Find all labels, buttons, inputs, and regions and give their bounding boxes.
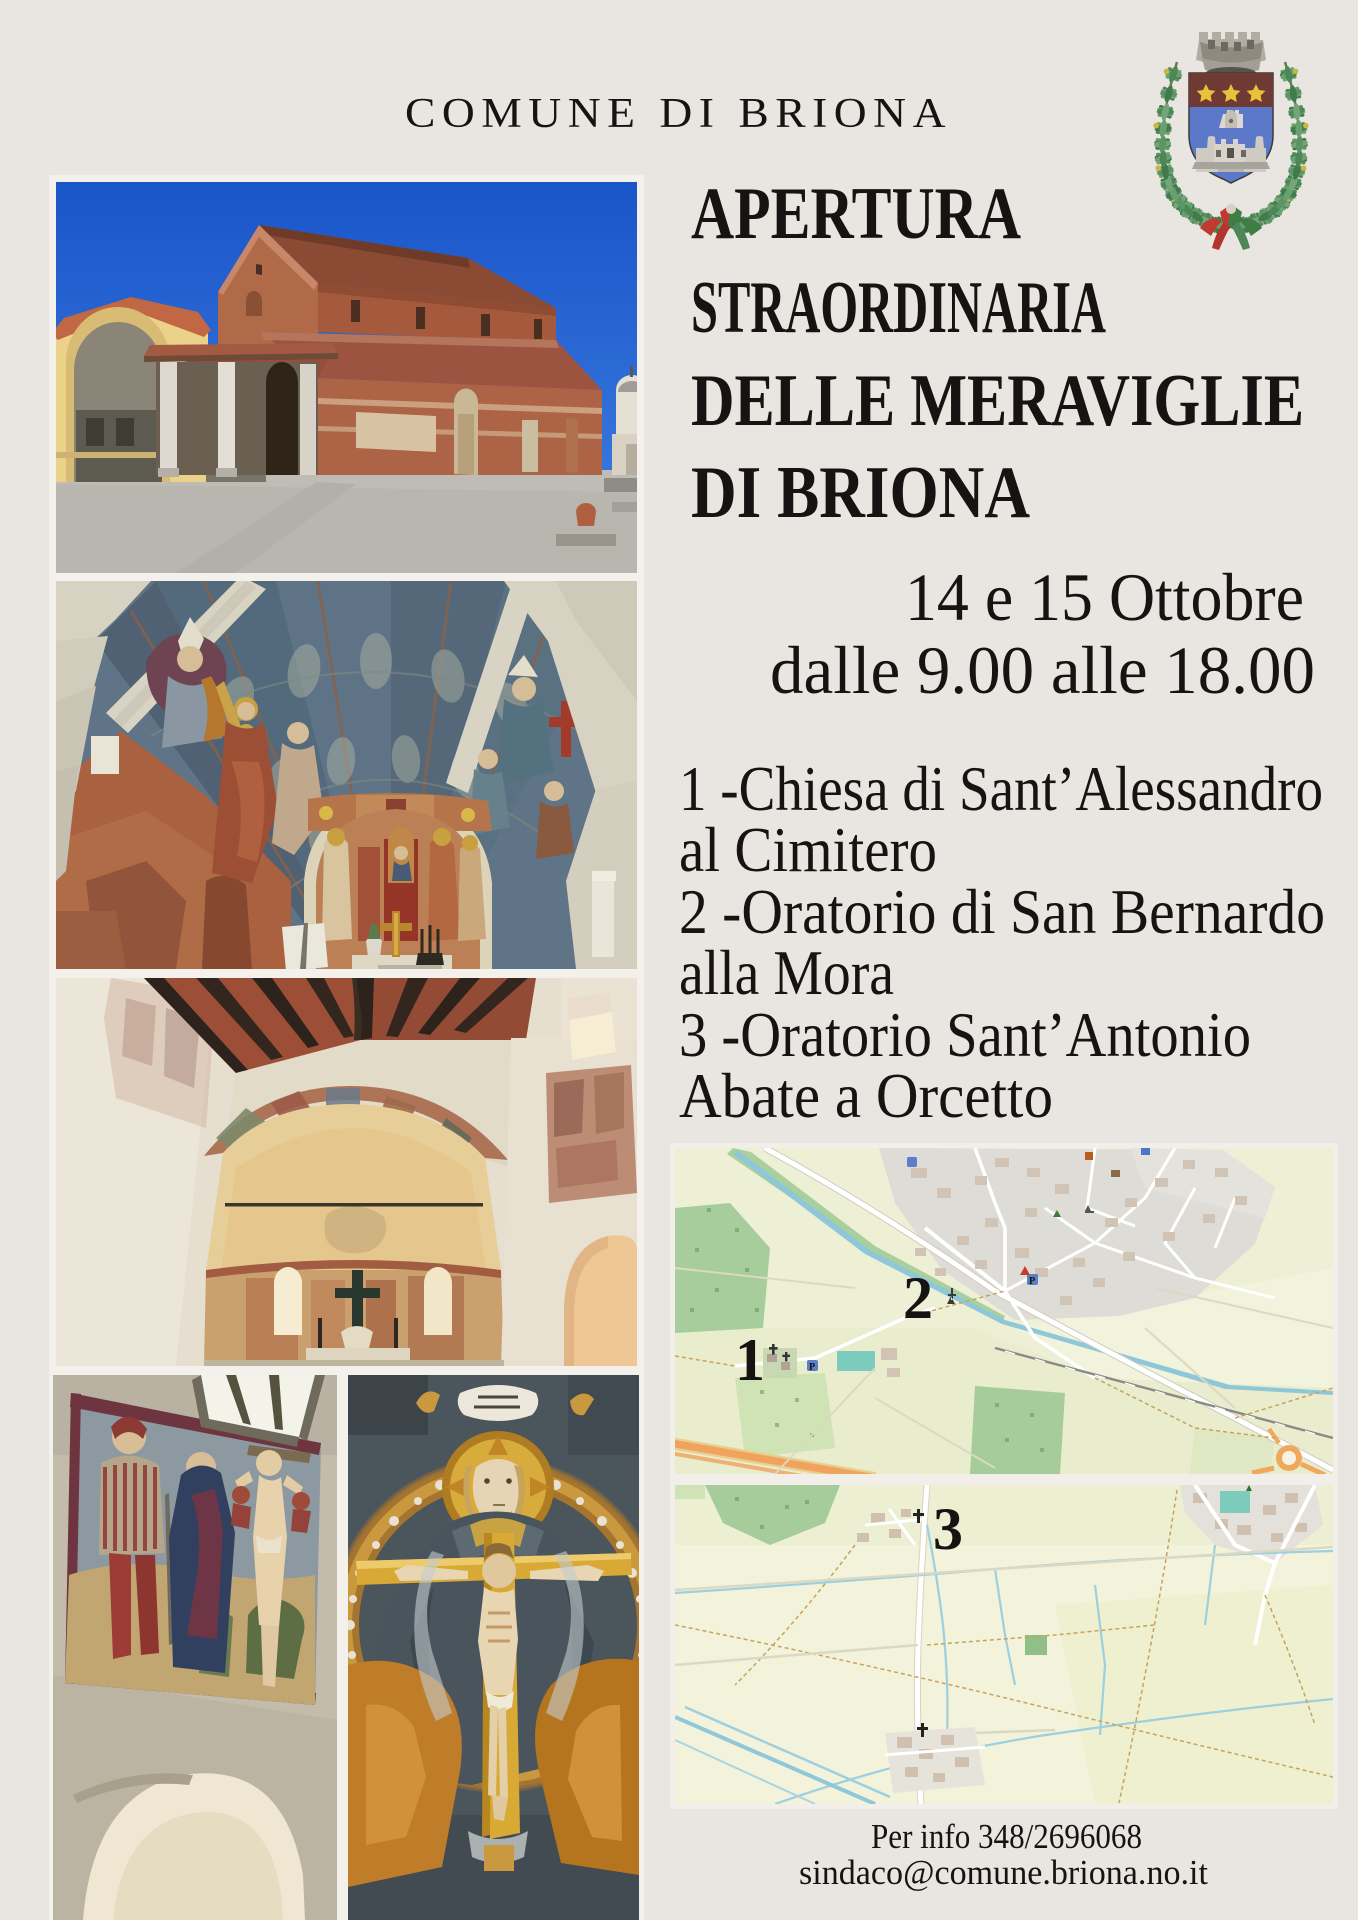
svg-text:P: P xyxy=(809,1362,815,1373)
svg-text:P: P xyxy=(1029,1276,1035,1287)
svg-text:Per info 348/2696068: Per info 348/2696068 xyxy=(871,1817,1142,1856)
svg-text:DELLE MERAVIGLIE: DELLE MERAVIGLIE xyxy=(691,360,1304,442)
svg-text:3: 3 xyxy=(933,1496,963,1562)
svg-text:al Cimitero: al Cimitero xyxy=(679,814,937,885)
svg-text:14 e 15 Ottobre: 14 e 15 Ottobre xyxy=(905,559,1304,635)
svg-text:2: 2 xyxy=(903,1265,933,1331)
svg-text:COMUNE DI BRIONA: COMUNE DI BRIONA xyxy=(405,91,952,137)
svg-text:1: 1 xyxy=(735,1327,765,1393)
svg-text:DI BRIONA: DI BRIONA xyxy=(691,452,1030,534)
svg-text:sindaco@comune.briona.no.it: sindaco@comune.briona.no.it xyxy=(799,1853,1208,1892)
svg-text:dalle 9.00 alle 18.00: dalle 9.00 alle 18.00 xyxy=(770,632,1315,708)
svg-text:Abate a Orcetto: Abate a Orcetto xyxy=(679,1060,1053,1131)
svg-text:alla Mora: alla Mora xyxy=(679,937,894,1008)
svg-text:APERTURA: APERTURA xyxy=(691,173,1021,255)
svg-text:STRAORDINARIA: STRAORDINARIA xyxy=(691,267,1106,349)
